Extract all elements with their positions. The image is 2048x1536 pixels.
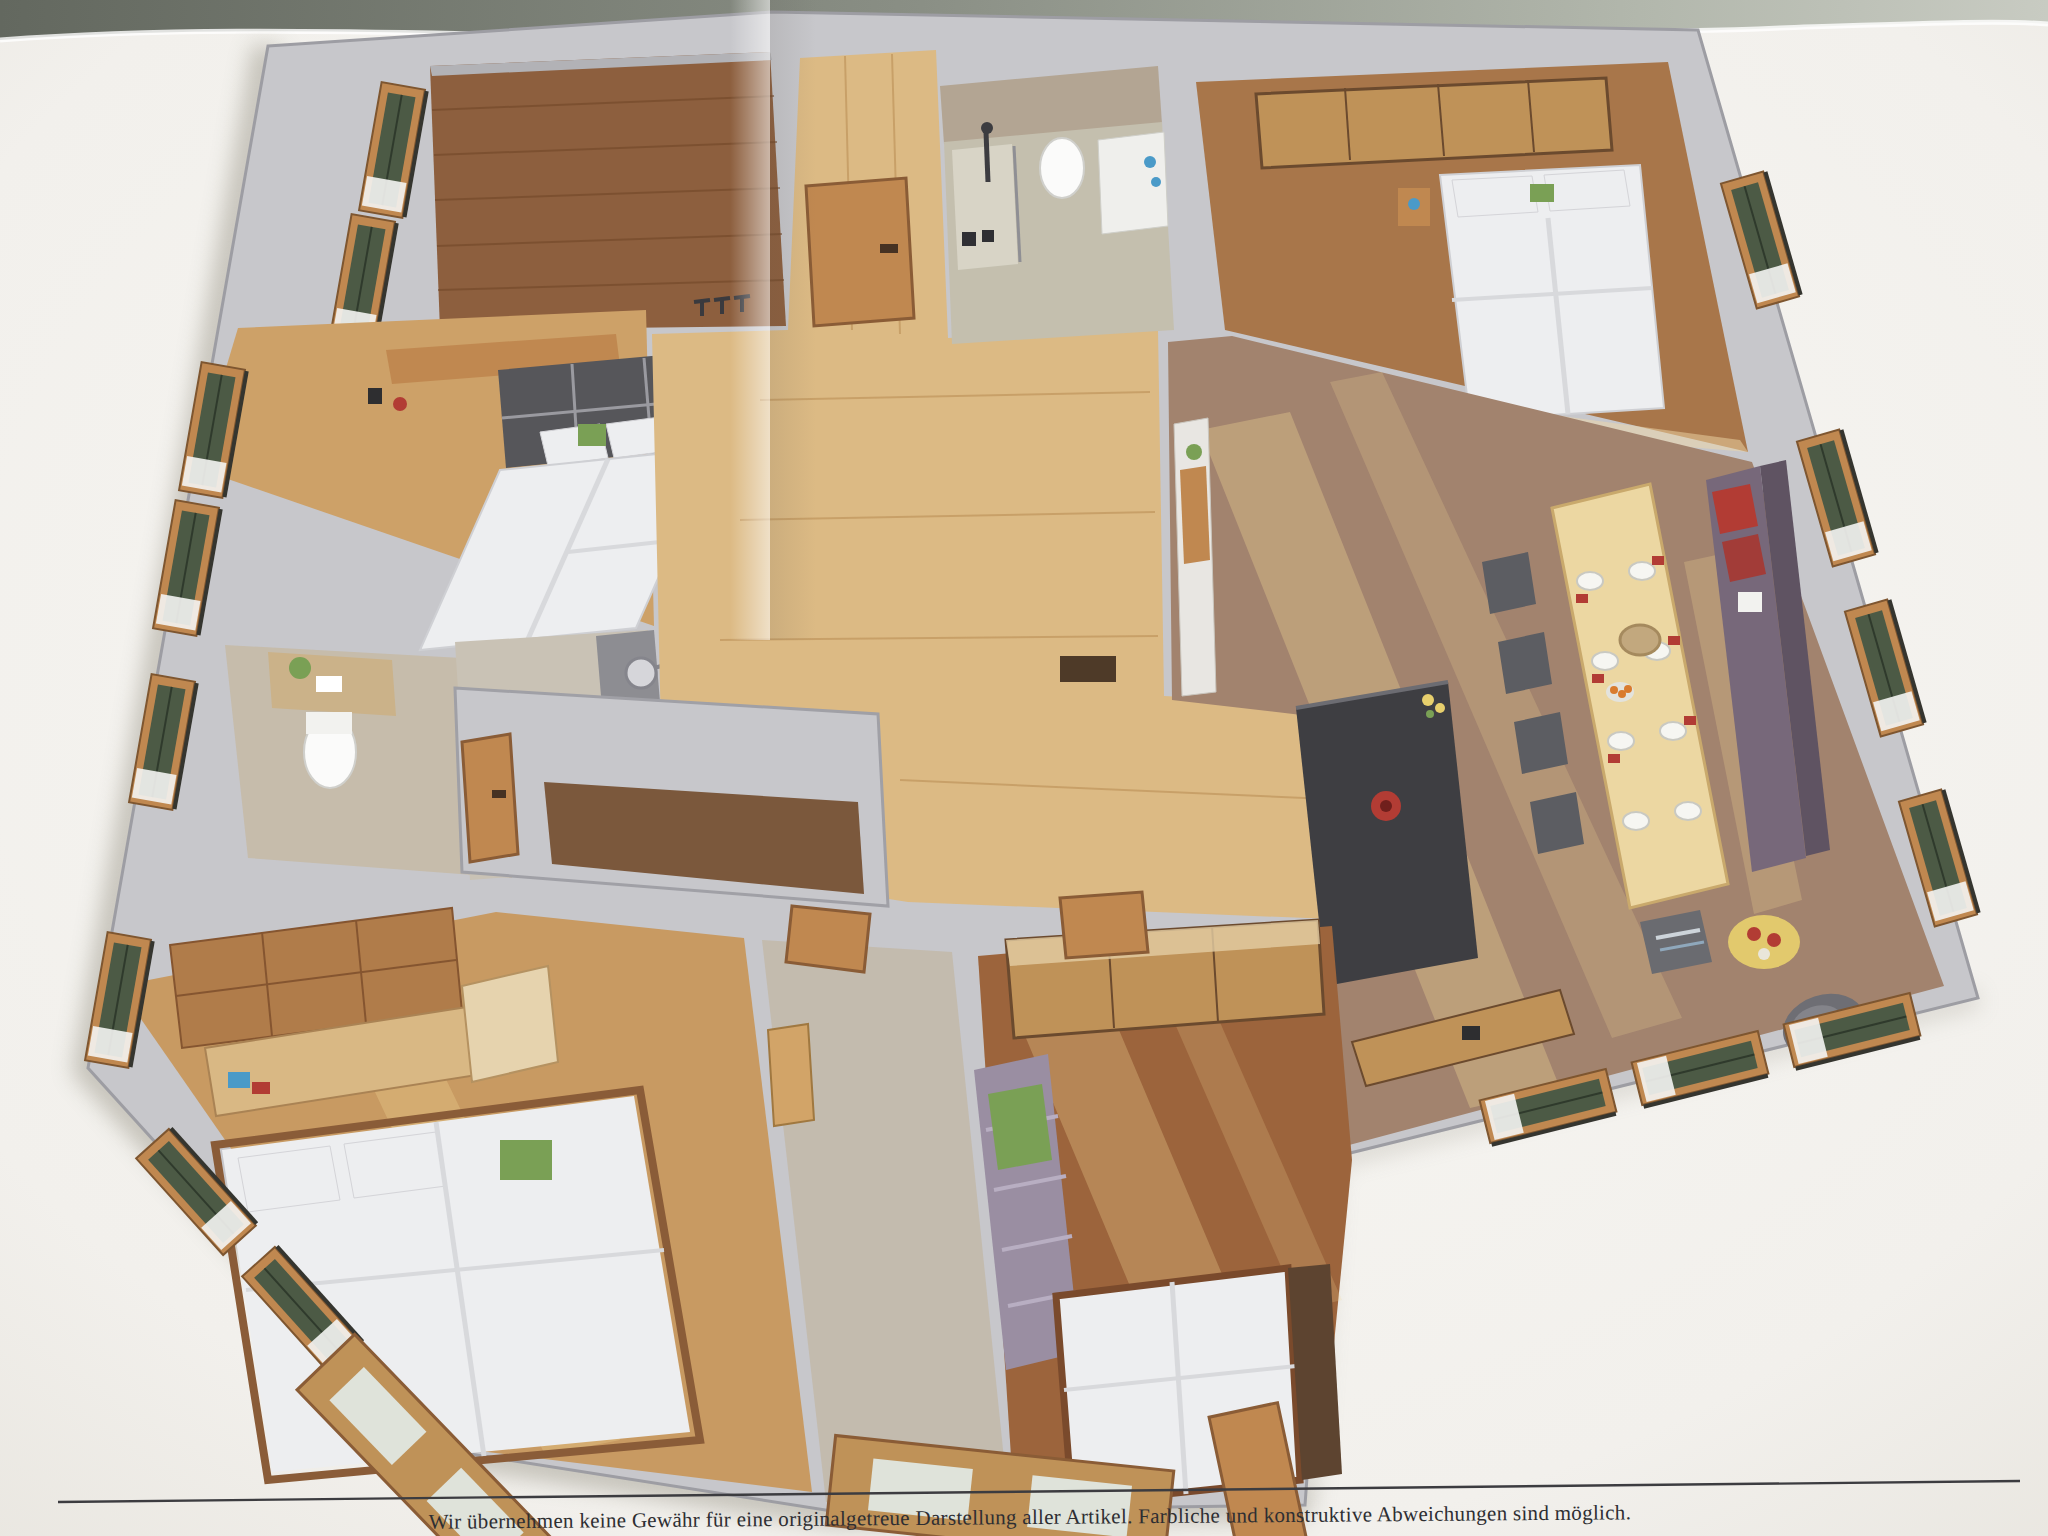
storage-closet xyxy=(455,688,888,906)
counter-door xyxy=(1180,466,1210,564)
towel-blue xyxy=(1151,177,1161,187)
door-handle xyxy=(492,790,506,798)
pillow-green xyxy=(578,424,606,446)
door-open xyxy=(786,906,870,972)
tall-cabinet xyxy=(462,966,558,1082)
plant-icon xyxy=(1186,444,1202,460)
lamp-red xyxy=(393,397,407,411)
door-handle xyxy=(626,658,656,688)
shoe-bench xyxy=(1060,656,1116,682)
sink xyxy=(1462,1026,1480,1040)
shower-column xyxy=(986,132,988,182)
towel-blue xyxy=(1144,156,1156,168)
pillow-green xyxy=(500,1140,552,1180)
bath-items xyxy=(962,232,976,246)
pillow xyxy=(238,1146,340,1212)
cushion-red xyxy=(1712,484,1758,534)
toilet-tank xyxy=(306,712,352,734)
fruit xyxy=(1422,694,1434,706)
photo-of-floorplan-page: Wir übernehmen keine Gewähr für eine ori… xyxy=(0,0,2048,1536)
plant-icon xyxy=(289,657,311,679)
fruit xyxy=(1435,703,1445,713)
door-side xyxy=(768,1024,814,1126)
washbasin xyxy=(316,676,342,692)
speaker xyxy=(368,388,382,404)
door-handle xyxy=(880,244,898,253)
cup-blue xyxy=(1408,198,1420,210)
room-bedroom-bottom-right xyxy=(974,892,1352,1504)
toy-blue xyxy=(228,1072,250,1088)
fruit xyxy=(1426,710,1434,718)
toy-red xyxy=(252,1082,270,1094)
page-fold-highlight xyxy=(730,0,770,640)
pillow xyxy=(1452,176,1538,217)
page-fold-shadow xyxy=(770,0,816,640)
cushion-red xyxy=(1722,534,1766,582)
floorplan-rendering: Wir übernehmen keine Gewähr für eine ori… xyxy=(0,0,2048,1536)
pillow xyxy=(1544,170,1630,211)
pillow-green xyxy=(1530,184,1554,202)
shower-head-icon xyxy=(981,122,993,134)
bath-items xyxy=(982,230,994,242)
door-open xyxy=(1060,892,1148,958)
room-bathroom xyxy=(940,66,1174,344)
toilet xyxy=(1040,138,1084,198)
basket-centerpiece xyxy=(1620,625,1660,655)
cooktop-center xyxy=(1380,800,1392,812)
play-rug xyxy=(1728,915,1800,969)
closet-door xyxy=(462,734,518,862)
cushion-white xyxy=(1738,592,1762,612)
pillow xyxy=(344,1132,446,1198)
sofa-cushion-green xyxy=(988,1084,1052,1170)
